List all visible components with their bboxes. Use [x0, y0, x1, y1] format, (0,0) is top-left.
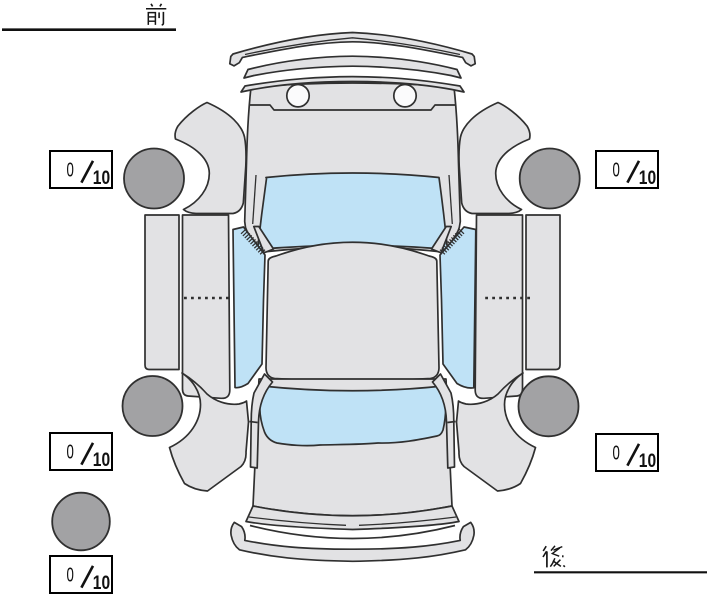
svg-text:0: 0	[613, 442, 620, 464]
svg-text:10: 10	[93, 449, 110, 471]
svg-text:0: 0	[67, 441, 74, 463]
svg-text:10: 10	[639, 450, 656, 472]
svg-text:0: 0	[67, 564, 74, 586]
svg-text:0: 0	[67, 159, 74, 181]
svg-text:0: 0	[613, 159, 620, 181]
svg-text:10: 10	[93, 572, 110, 594]
svg-text:10: 10	[639, 167, 656, 189]
svg-text:10: 10	[93, 167, 110, 189]
